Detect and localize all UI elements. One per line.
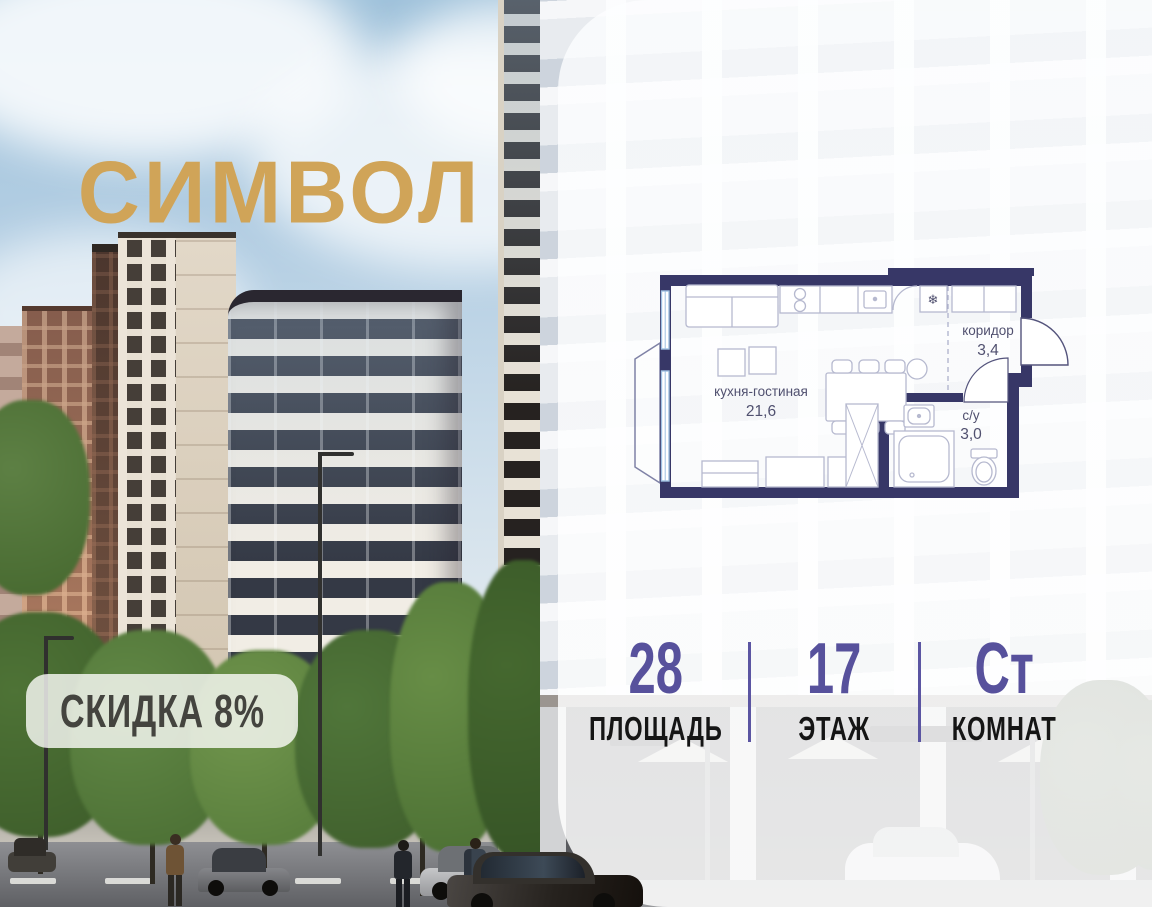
plan-windows: [662, 291, 670, 481]
stat-rooms: Ст КОМНАТ: [921, 636, 1087, 748]
street-lamp: [318, 452, 322, 856]
pedestrian: [160, 834, 194, 906]
stat-floor-label: ЭТАЖ: [775, 710, 895, 748]
stats-row: 28 ПЛОЩАДЬ 17 ЭТАЖ Ст КОМНАТ: [563, 636, 1087, 748]
fridge-snowflake-icon: ❄: [928, 292, 939, 307]
room-label: с/у: [962, 408, 980, 423]
pedestrian: [388, 840, 422, 907]
stat-floor: 17 ЭТАЖ: [751, 636, 917, 748]
room-area: 3,4: [977, 342, 999, 359]
listing-card[interactable]: ❄ кухня-гостиная 21,6 коридор 3,4 с/у 3,…: [0, 0, 1152, 907]
car-suv: [8, 838, 56, 872]
stat-area-value: 28: [593, 636, 719, 702]
car-sedan-gray: [198, 848, 290, 892]
stat-area: 28 ПЛОЩАДЬ: [563, 636, 748, 748]
street-lamp-arm: [318, 452, 354, 456]
room-label: коридор: [962, 323, 1014, 338]
stat-rooms-value: Ст: [947, 636, 1060, 702]
stat-rooms-label: КОМНАТ: [944, 710, 1064, 748]
stat-area-label: ПЛОЩАДЬ: [589, 710, 723, 748]
discount-badge: СКИДКА 8%: [26, 674, 298, 748]
room-label: кухня-гостиная: [714, 384, 808, 399]
road-marking: [105, 878, 151, 884]
discount-badge-label: СКИДКА 8%: [60, 684, 265, 738]
brand-logo: СИМВОЛ: [40, 149, 520, 237]
room-area: 3,0: [960, 426, 982, 443]
floor-plan-diagram: ❄ кухня-гостиная 21,6 коридор 3,4 с/у 3,…: [630, 263, 1090, 513]
car-sedan-dark: [447, 852, 643, 907]
road-marking: [295, 878, 341, 884]
room-area: 21,6: [746, 403, 776, 420]
street-lamp-arm: [44, 636, 74, 640]
road-marking: [10, 878, 56, 884]
balcony-outline: [635, 343, 660, 483]
stat-floor-value: 17: [778, 636, 891, 702]
